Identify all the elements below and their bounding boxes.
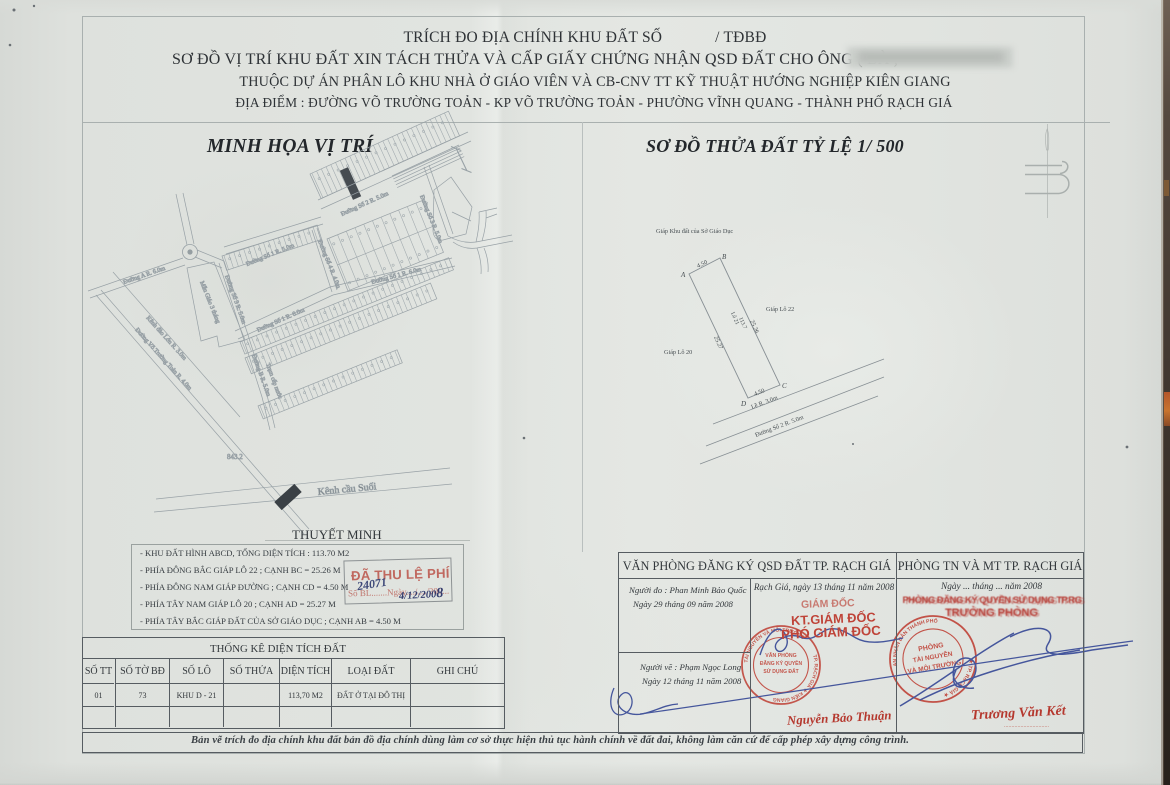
- svg-text:B: B: [722, 253, 727, 261]
- svg-text:Đường Số 2 R. 5.0m: Đường Số 2 R. 5.0m: [340, 190, 390, 218]
- svg-text:843.2: 843.2: [227, 453, 243, 461]
- svg-text:Đường Số 3 R. 5.0m: Đường Số 3 R. 5.0m: [223, 274, 247, 325]
- svg-text:Kênh đào Lớn R. 3.0m: Kênh đào Lớn R. 3.0m: [145, 315, 188, 362]
- svg-text:D: D: [740, 400, 746, 408]
- svg-text:Đường A R. 6.0m: Đường A R. 6.0m: [122, 265, 166, 286]
- svg-text:C: C: [782, 382, 787, 390]
- svg-text:Giáp Lô 22: Giáp Lô 22: [766, 306, 794, 313]
- svg-text:Đường Số 1 R. 6.0m: Đường Số 1 R. 6.0m: [256, 306, 306, 333]
- svg-text:25.27: 25.27: [712, 335, 724, 351]
- svg-text:Kênh cầu Suối: Kênh cầu Suối: [317, 481, 377, 498]
- svg-text:4.50: 4.50: [696, 259, 709, 270]
- svg-text:A: A: [680, 271, 686, 279]
- svg-text:Giáp Lô 20: Giáp Lô 20: [664, 349, 692, 356]
- svg-text:25.26: 25.26: [748, 319, 760, 335]
- svg-text:Giáp Khu đất của Sở Giáo Dục: Giáp Khu đất của Sở Giáo Dục: [656, 228, 733, 235]
- svg-text:4.50: 4.50: [753, 387, 766, 398]
- svg-text:Mẫu Giáo 3 tháng: Mẫu Giáo 3 tháng: [198, 280, 221, 324]
- svg-text:Đường Số 3 R. 5.0m: Đường Số 3 R. 5.0m: [418, 194, 444, 244]
